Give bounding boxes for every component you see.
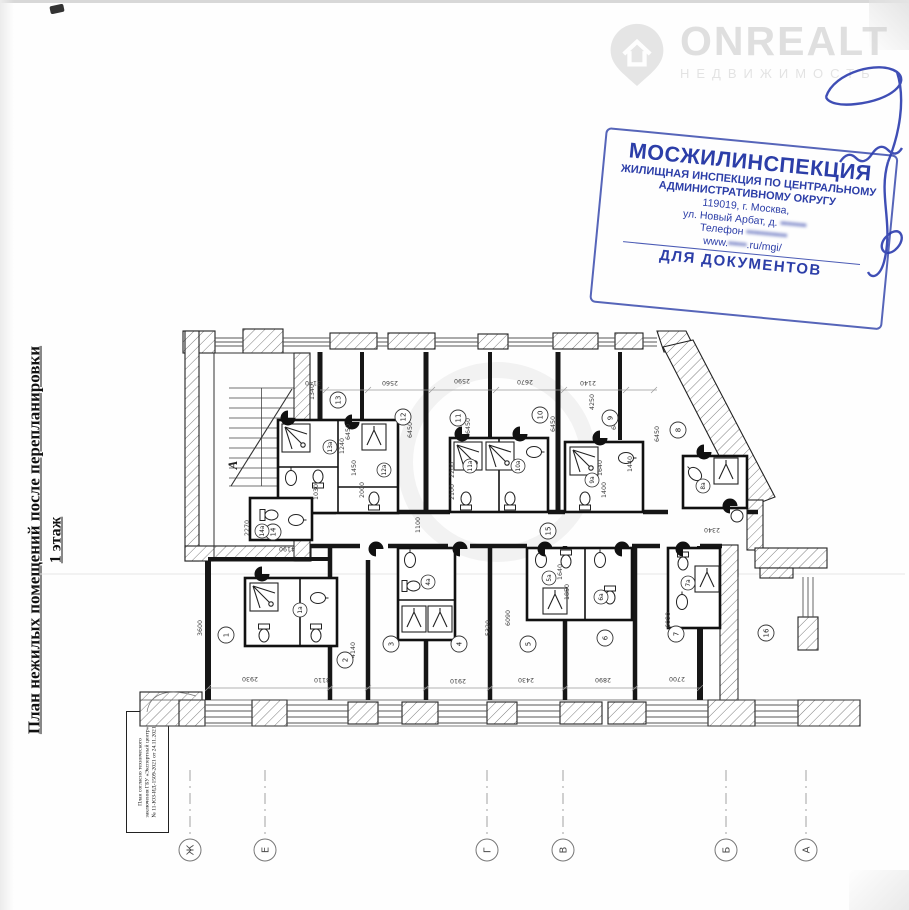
dimension-label: 1640: [597, 460, 604, 476]
axis-letter: Г: [482, 847, 493, 853]
bath-number-text: 6а: [599, 593, 605, 601]
dimension-label: 2560: [382, 379, 398, 386]
stair-label: А: [225, 460, 240, 470]
bath-number-text: 12а: [382, 464, 388, 475]
shower-icon: [570, 447, 598, 475]
toilet-icon: [505, 492, 516, 510]
dimension-label: 3600: [197, 620, 204, 636]
room-number-text: 2: [341, 658, 349, 662]
dimension-label: 2590: [454, 377, 470, 384]
dimension-label: 6090: [505, 610, 512, 626]
room-number-text: 5: [524, 642, 532, 646]
dimension-label: 2700: [669, 675, 685, 682]
toilet-icon: [461, 492, 472, 510]
room-number-text: 16: [762, 628, 770, 637]
dimension-label: 6450: [407, 422, 414, 438]
bath-number-text: 5а: [547, 574, 553, 582]
axis-letter: Б: [721, 846, 732, 853]
dimension-label: 1640: [557, 564, 564, 580]
toilet-icon: [369, 492, 380, 510]
dimension-label: 5320: [485, 620, 492, 636]
room-number-text: 14: [269, 527, 277, 536]
dimension-label: 2100: [449, 484, 456, 500]
room-number-text: 6: [601, 635, 609, 640]
room-number-text: 1: [222, 633, 230, 637]
room-number-text: 13: [334, 396, 342, 405]
axis-letter: Ж: [185, 844, 196, 855]
dimension-label: 3110: [314, 676, 330, 683]
bath-number-text: 7а: [686, 579, 692, 587]
shower-icon: [250, 583, 278, 611]
stairwell-letter: А: [225, 460, 240, 470]
bath-number-text: 11а: [468, 460, 474, 471]
floor-plan: 3140256025902670214013406450645064506450…: [0, 0, 909, 910]
axis-letter: В: [558, 846, 569, 853]
dimension-label: 6450: [654, 426, 661, 442]
toilet-icon: [259, 624, 270, 642]
dimension-label: 2340: [704, 526, 720, 533]
room-number-text: 10: [536, 411, 544, 420]
dimension-label: 1240: [339, 438, 346, 454]
shower-icon: [486, 442, 514, 470]
dimension-label: 1030: [313, 484, 320, 500]
room-number-text: 15: [544, 527, 552, 536]
bath-number-text: 10а: [516, 460, 522, 471]
shower-icon: [402, 606, 426, 632]
dimension-label: 1450: [351, 460, 358, 476]
shower-icon: [695, 566, 719, 592]
bath-number-text: 4а: [426, 578, 432, 586]
room-number-text: 3: [387, 642, 395, 646]
shower-icon: [714, 458, 738, 484]
toilet-icon: [260, 510, 278, 521]
dimension-label: 2200: [449, 462, 456, 478]
shower-icon: [282, 424, 310, 452]
dimension-label: 2140: [580, 379, 596, 386]
axis-markers: ЖЕГВБА: [179, 770, 817, 861]
shower-icon: [428, 606, 452, 632]
dimension-label: 6090: [665, 612, 672, 628]
drain-icon: [731, 510, 743, 522]
dimension-label: 2670: [517, 378, 533, 385]
scanned-floor-plan-page: ONREALT НЕДВИЖИМОСТЬ МОСЖИЛИНСПЕКЦИЯ ЖИЛ…: [0, 0, 909, 910]
dimension-label: 2890: [595, 676, 611, 683]
bath-number-text: 13а: [328, 441, 334, 452]
dimension-label: 1340: [309, 384, 316, 400]
dimension-label: 2910: [450, 677, 466, 684]
shower-icon: [362, 424, 386, 450]
dimension-label: 6450: [345, 424, 352, 440]
dimension-label: 6450: [550, 416, 557, 432]
dimension-label: 2930: [242, 675, 258, 682]
room-number-text: 7: [672, 632, 680, 636]
dimension-label: 1400: [601, 482, 608, 498]
signature-scribble: [826, 67, 902, 276]
dimension-label: 1850: [564, 584, 571, 600]
room-number-text: 9: [606, 416, 614, 420]
bath-number-text: 8а: [701, 482, 707, 490]
axis-letter: Е: [260, 847, 271, 853]
dimension-label: 2430: [518, 676, 534, 683]
dimension-label: 2000: [359, 482, 366, 498]
room-number-text: 12: [399, 413, 407, 422]
room-number-text: 8: [674, 428, 682, 432]
bath-number-text: 9а: [590, 476, 596, 484]
dimension-label: 4190: [279, 545, 295, 552]
toilet-icon: [311, 624, 322, 642]
dimension-label: 4250: [589, 394, 596, 410]
dimension-label: 1440: [627, 456, 634, 472]
axis-letter: А: [801, 846, 812, 853]
room-number-text: 4: [455, 641, 463, 646]
dimension-label: 2270: [244, 520, 251, 536]
toilet-icon: [580, 492, 591, 510]
dimension-label: 1100: [415, 517, 422, 533]
bath-number-text: 1а: [298, 606, 304, 614]
room-number-text: 11: [454, 414, 462, 423]
toilet-icon: [402, 581, 420, 592]
bath-number-text: 14а: [260, 525, 266, 536]
